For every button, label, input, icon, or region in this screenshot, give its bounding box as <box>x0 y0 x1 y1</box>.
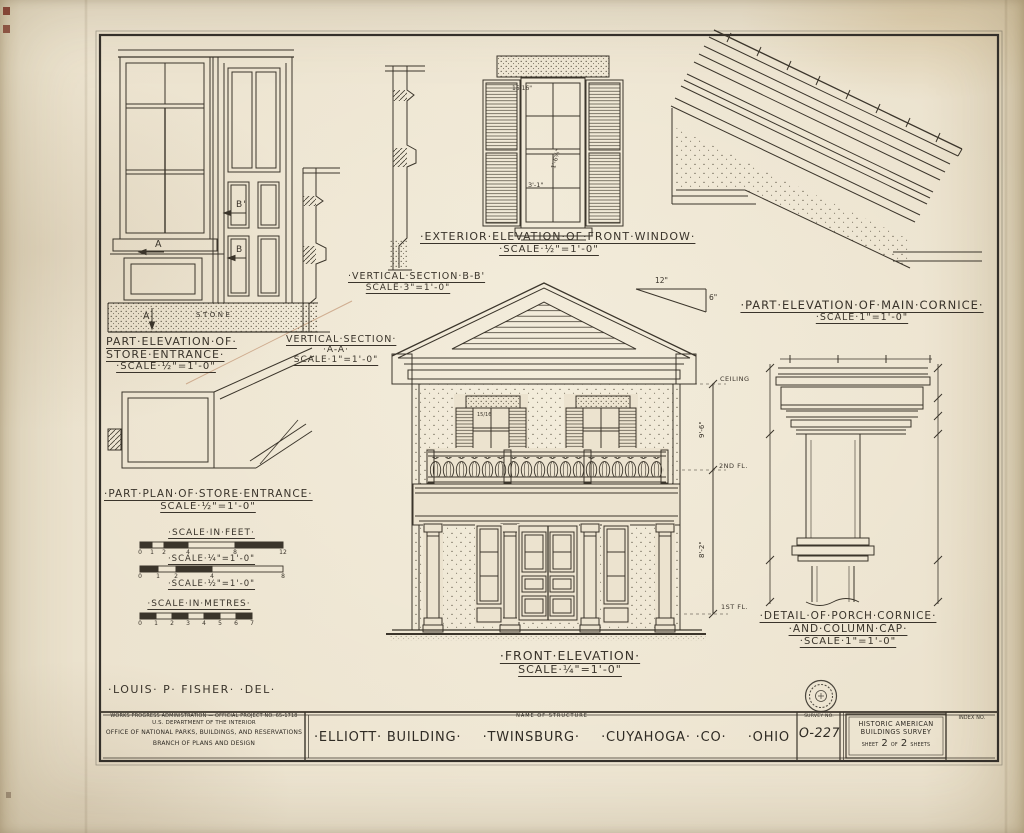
mark-b-top: B' <box>236 201 247 210</box>
front-elevation-drawing <box>386 283 706 641</box>
main-cornice-drawing <box>671 30 982 268</box>
store-entrance-elevation-drawing <box>108 50 318 332</box>
vertical-section-bb-drawing <box>385 66 425 270</box>
scale-main-cornice: ·SCALE·1"=1'-0" <box>733 313 991 323</box>
scale-section-aa: SCALE·1"=1'-0" <box>286 356 386 365</box>
structure-name-town: ·TWINSBURG· <box>483 731 580 746</box>
mark-a-bottom: A <box>143 312 151 322</box>
roof-pitch-triangle <box>636 289 706 312</box>
scale-bars-quarter-caption: ·SCALE·¼"=1'-0" <box>140 555 283 564</box>
bar3-tick-4: 4 <box>199 621 209 627</box>
sheet-word: SHEET <box>862 743 879 749</box>
bar3-tick-1: 1 <box>151 621 161 627</box>
front-window-elevation-drawing <box>483 56 623 240</box>
of-word: OF <box>891 743 898 749</box>
mark-a-top: A <box>155 240 163 250</box>
scale-bars-half-caption: ·SCALE·½"=1'-0" <box>140 580 283 589</box>
structure-name-building: ·ELLIOTT· BUILDING· <box>314 731 461 746</box>
scale-front-window: ·SCALE·½"=1'-0" <box>420 245 678 256</box>
level-ceiling: CEILING <box>720 376 750 383</box>
agency-line2: U.S. DEPARTMENT OF THE INTERIOR <box>104 720 304 726</box>
scale-front-elevation: SCALE·¼"=1'-0" <box>480 664 660 676</box>
pitch-rise-label: 6" <box>709 294 717 302</box>
note-stone: STONE <box>196 312 232 319</box>
sheet-total: 2 <box>901 738 908 750</box>
structure-name-county: ·CUYAHOGA· ·CO· <box>601 731 726 746</box>
scale-bars-metres-title: ·SCALE·IN·METRES· <box>134 600 264 609</box>
sheet-number: 2 <box>881 738 888 750</box>
level-first-floor: 1ST FL. <box>721 604 748 611</box>
structure-name: ·ELLIOTT· BUILDING· ·TWINSBURG· ·CUYAHOG… <box>314 721 790 755</box>
title-section-aa: VERTICAL·SECTION· <box>286 335 386 345</box>
scale-bars-feet-title: ·SCALE·IN·FEET· <box>140 529 283 538</box>
habs-sheet-line: SHEET 2 OF 2 SHEETS <box>850 738 942 750</box>
sheets-word: SHEETS <box>910 743 930 749</box>
delineator-credit: ·LOUIS· P· FISHER· ·DEL· <box>108 684 276 696</box>
name-of-structure-label: NAME OF STRUCTURE <box>310 714 794 720</box>
registration-marks <box>3 7 11 798</box>
dim-storey2: 9'-6" <box>699 421 706 438</box>
habs-line2: BUILDINGS SURVEY <box>850 729 942 737</box>
porch-cornice-detail-drawing <box>766 355 942 606</box>
title-front-elevation: ·FRONT·ELEVATION· <box>480 649 660 662</box>
bar3-tick-3: 3 <box>183 621 193 627</box>
title-porch-detail-line1: ·DETAIL·OF·PORCH·CORNICE· <box>746 611 950 622</box>
title-porch-detail-line2: ·AND·COLUMN·CAP· <box>746 624 950 635</box>
scale-section-bb: SCALE·3"=1'-0" <box>353 284 463 293</box>
dim-window-pane: 15/16" <box>512 86 532 92</box>
bar3-tick-5: 5 <box>215 621 225 627</box>
drawing-sheet: PART·ELEVATION·OF· STORE·ENTRANCE· ·SCAL… <box>0 0 1024 833</box>
agency-line1: WORKS PROGRESS ADMINISTRATION — OFFICIAL… <box>104 714 304 720</box>
vertical-section-aa-drawing <box>298 168 340 332</box>
structure-name-state: ·OHIO <box>748 731 790 746</box>
mark-b-bottom: B <box>236 246 243 255</box>
dim-fe-window: 15/16 <box>477 413 491 418</box>
title-store-entrance-line1: PART·ELEVATION·OF· <box>106 336 236 348</box>
dim-storey1: 8'-2" <box>699 541 706 558</box>
title-section-bb: ·VERTICAL·SECTION·B-B' <box>348 272 468 282</box>
bar3-tick-6: 6 <box>231 621 241 627</box>
title-store-plan: ·PART·PLAN·OF·STORE·ENTRANCE· <box>104 489 312 500</box>
scale-store-plan: SCALE·½"=1'-0" <box>104 502 312 513</box>
level-second-floor: 2ND FL. <box>719 463 748 470</box>
scale-porch-detail: ·SCALE·1"=1'-0" <box>746 637 950 648</box>
dim-window-width: 3'-1" <box>528 182 543 189</box>
scale-store-entrance: ·SCALE·½"=1'-0" <box>106 362 226 373</box>
storey-dimension-string <box>682 380 728 618</box>
bar3-tick-7: 7 <box>247 621 257 627</box>
title-main-cornice: ·PART·ELEVATION·OF·MAIN·CORNICE· <box>733 299 991 311</box>
index-no-label: INDEX NO. <box>948 716 996 722</box>
title-store-entrance-line2: STORE·ENTRANCE· <box>106 349 236 361</box>
bar3-tick-0: 0 <box>135 621 145 627</box>
survey-no-label: SURVEY NO. <box>798 714 840 719</box>
sheet-line-art <box>0 0 1024 833</box>
survey-no-value: O-227 <box>795 727 843 742</box>
agency-line4: BRANCH OF PLANS AND DESIGN <box>104 741 304 748</box>
pitch-run-label: 12" <box>655 277 668 285</box>
title-front-window: ·EXTERIOR·ELEVATION·OF·FRONT·WINDOW· <box>420 231 678 243</box>
official-stamp <box>806 681 837 712</box>
bar3-tick-2: 2 <box>167 621 177 627</box>
agency-line3: OFFICE OF NATIONAL PARKS, BUILDINGS, AND… <box>104 730 304 737</box>
